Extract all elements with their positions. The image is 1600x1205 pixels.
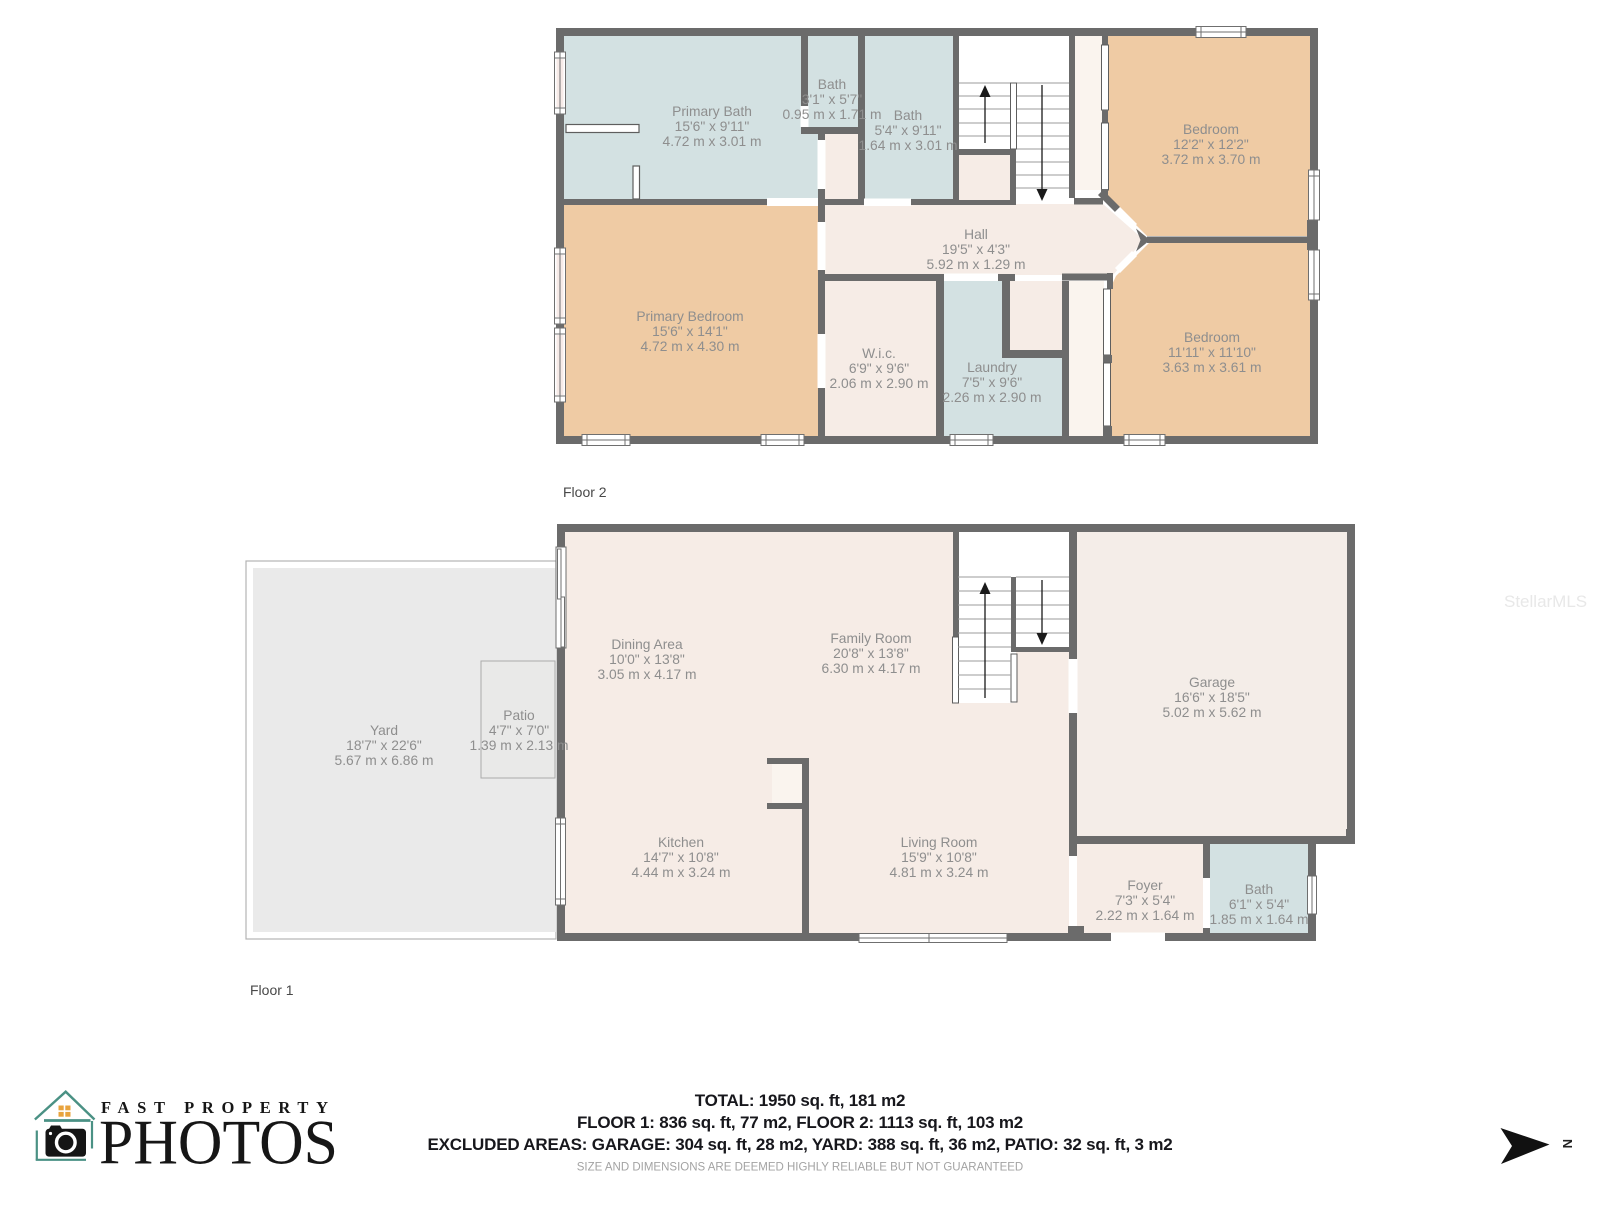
- svg-text:1.39 m x 2.13 m: 1.39 m x 2.13 m: [470, 738, 569, 753]
- svg-text:N: N: [1560, 1139, 1575, 1148]
- svg-text:Primary Bedroom: Primary Bedroom: [636, 309, 743, 324]
- svg-text:Kitchen: Kitchen: [658, 835, 704, 850]
- svg-text:FLOOR 1: 836 sq. ft, 77 m2, FL: FLOOR 1: 836 sq. ft, 77 m2, FLOOR 2: 111…: [577, 1113, 1023, 1132]
- svg-text:4.81 m x 3.24 m: 4.81 m x 3.24 m: [890, 865, 989, 880]
- svg-text:StellarMLS: StellarMLS: [1504, 592, 1587, 611]
- svg-text:Bedroom: Bedroom: [1184, 330, 1240, 345]
- svg-text:5.67 m x 6.86 m: 5.67 m x 6.86 m: [335, 753, 434, 768]
- svg-text:Bedroom: Bedroom: [1183, 122, 1239, 137]
- svg-text:4.72 m x 3.01 m: 4.72 m x 3.01 m: [663, 134, 762, 149]
- svg-text:TOTAL: 1950 sq. ft, 181 m2: TOTAL: 1950 sq. ft, 181 m2: [695, 1091, 906, 1110]
- svg-text:1.85 m x 1.64 m: 1.85 m x 1.64 m: [1210, 912, 1309, 927]
- svg-text:Living Room: Living Room: [901, 835, 978, 850]
- svg-text:16'6" x 18'5": 16'6" x 18'5": [1174, 690, 1250, 705]
- svg-text:PHOTOS: PHOTOS: [99, 1107, 338, 1178]
- svg-text:Dining Area: Dining Area: [611, 637, 683, 652]
- svg-text:Garage: Garage: [1189, 675, 1235, 690]
- svg-text:5.92 m x 1.29 m: 5.92 m x 1.29 m: [927, 257, 1026, 272]
- svg-text:3.63 m x 3.61 m: 3.63 m x 3.61 m: [1163, 360, 1262, 375]
- svg-text:4'7" x 7'0": 4'7" x 7'0": [489, 723, 549, 738]
- svg-text:5.02 m x 5.62 m: 5.02 m x 5.62 m: [1163, 705, 1262, 720]
- svg-text:Floor 2: Floor 2: [563, 484, 607, 500]
- svg-text:6.30 m x 4.17 m: 6.30 m x 4.17 m: [822, 661, 921, 676]
- svg-text:Hall: Hall: [964, 227, 988, 242]
- svg-text:2.26 m x 2.90 m: 2.26 m x 2.90 m: [943, 390, 1042, 405]
- svg-text:EXCLUDED AREAS: GARAGE: 304 sq: EXCLUDED AREAS: GARAGE: 304 sq. ft, 28 m…: [428, 1135, 1173, 1154]
- svg-text:Yard: Yard: [370, 723, 398, 738]
- svg-text:14'7" x 10'8": 14'7" x 10'8": [643, 850, 719, 865]
- svg-text:20'8" x 13'8": 20'8" x 13'8": [833, 646, 909, 661]
- svg-text:Bath: Bath: [1245, 882, 1273, 897]
- svg-text:Laundry: Laundry: [967, 360, 1017, 375]
- svg-text:18'7" x 22'6": 18'7" x 22'6": [346, 738, 422, 753]
- svg-text:3.05 m x 4.17 m: 3.05 m x 4.17 m: [598, 667, 697, 682]
- svg-text:2.22 m x 1.64 m: 2.22 m x 1.64 m: [1096, 908, 1195, 923]
- svg-text:10'0" x 13'8": 10'0" x 13'8": [609, 652, 685, 667]
- svg-text:Floor 1: Floor 1: [250, 982, 294, 998]
- svg-text:Bath: Bath: [894, 108, 922, 123]
- svg-text:2.06 m x 2.90 m: 2.06 m x 2.90 m: [830, 376, 929, 391]
- svg-text:Primary Bath: Primary Bath: [672, 104, 752, 119]
- svg-text:7'3" x 5'4": 7'3" x 5'4": [1115, 893, 1175, 908]
- svg-text:15'9" x 10'8": 15'9" x 10'8": [901, 850, 977, 865]
- svg-text:Foyer: Foyer: [1127, 878, 1163, 893]
- svg-text:15'6" x 14'1": 15'6" x 14'1": [652, 324, 728, 339]
- svg-text:W.i.c.: W.i.c.: [862, 346, 896, 361]
- svg-text:3'1" x 5'7": 3'1" x 5'7": [802, 92, 862, 107]
- svg-text:1.64 m x 3.01 m: 1.64 m x 3.01 m: [859, 138, 958, 153]
- svg-text:6'1" x 5'4": 6'1" x 5'4": [1229, 897, 1289, 912]
- svg-text:7'5" x 9'6": 7'5" x 9'6": [962, 375, 1022, 390]
- svg-text:4.44 m x 3.24 m: 4.44 m x 3.24 m: [632, 865, 731, 880]
- svg-text:5'4" x 9'11": 5'4" x 9'11": [875, 123, 942, 138]
- svg-text:Patio: Patio: [503, 708, 535, 723]
- svg-text:3.72 m x 3.70 m: 3.72 m x 3.70 m: [1162, 152, 1261, 167]
- svg-text:0.95 m x 1.71 m: 0.95 m x 1.71 m: [783, 107, 882, 122]
- svg-text:Bath: Bath: [818, 77, 846, 92]
- svg-text:12'2" x 12'2": 12'2" x 12'2": [1173, 137, 1249, 152]
- svg-text:6'9" x 9'6": 6'9" x 9'6": [849, 361, 909, 376]
- svg-text:19'5" x 4'3": 19'5" x 4'3": [942, 242, 1010, 257]
- svg-text:4.72 m x 4.30 m: 4.72 m x 4.30 m: [641, 339, 740, 354]
- svg-text:15'6" x 9'11": 15'6" x 9'11": [675, 119, 750, 134]
- svg-text:Family Room: Family Room: [830, 631, 911, 646]
- svg-text:SIZE AND DIMENSIONS ARE DEEMED: SIZE AND DIMENSIONS ARE DEEMED HIGHLY RE…: [577, 1162, 1023, 1174]
- svg-text:11'11" x 11'10": 11'11" x 11'10": [1168, 345, 1256, 360]
